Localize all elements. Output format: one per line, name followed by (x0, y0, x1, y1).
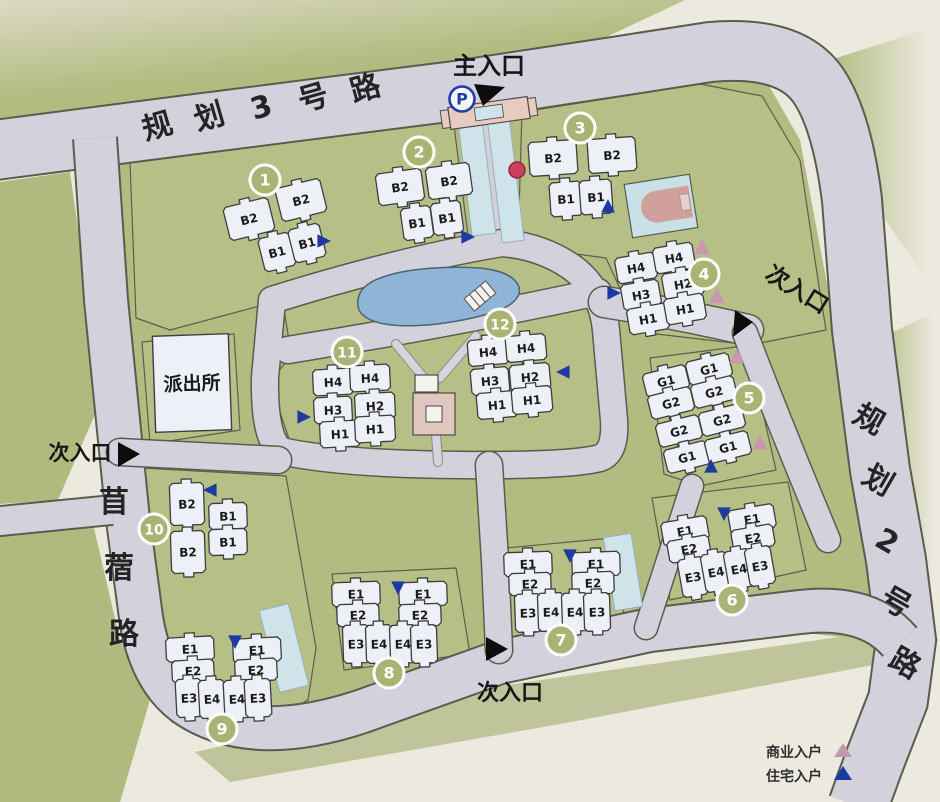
building-E3: E3 (583, 589, 611, 636)
legend-residential-label: 住宅入户 (766, 768, 822, 785)
cluster-number-text: 2 (413, 143, 424, 162)
cluster-number-text: 4 (698, 265, 709, 284)
cluster-number-text: 3 (574, 119, 585, 138)
cluster-number-text: 9 (216, 720, 227, 739)
building-label: E4 (730, 561, 749, 578)
red-dot-marker (509, 162, 525, 178)
cluster-number-badge-12: 12 (485, 309, 515, 339)
building-label: E4 (567, 605, 584, 620)
building-label: E4 (707, 564, 726, 581)
building-label: E4 (371, 637, 388, 652)
plaza-pavilion (415, 375, 438, 392)
building-label: H4 (516, 341, 536, 357)
building-label: B1 (557, 192, 575, 207)
building-label: E3 (416, 637, 433, 652)
building-label: H3 (480, 374, 500, 390)
cluster-number-badge-5: 5 (734, 383, 764, 413)
building-label: E4 (203, 692, 220, 707)
building-B2: B2 (528, 135, 579, 180)
building-label: H1 (522, 393, 542, 409)
parking-icon-letter: P (456, 90, 468, 109)
cluster-number-badge-7: 7 (546, 625, 576, 655)
building-label: E3 (348, 637, 365, 652)
building-label: E3 (520, 606, 537, 621)
cluster-number-text: 5 (743, 389, 754, 408)
building-label: E4 (543, 605, 560, 620)
building-B1: B1 (549, 177, 584, 221)
building-label: B1 (587, 190, 605, 205)
building-label: H1 (330, 427, 349, 442)
building-label: E3 (589, 605, 606, 620)
building-label: B2 (390, 179, 409, 195)
cluster-number-badge-1: 1 (250, 165, 280, 195)
parking-sign: P (450, 87, 475, 112)
cluster-number-badge-4: 4 (689, 259, 719, 289)
site-plan-page: 派出所 B2B2B1B1B2B2B1B1B2B2B1B1H4H4H3H2H1H1… (0, 0, 940, 802)
cluster-number-text: 6 (726, 591, 737, 610)
building-label: B1 (407, 215, 426, 231)
police-station: 派出所 (152, 334, 231, 433)
building-label: H1 (365, 422, 384, 437)
cluster-number-badge-9: 9 (207, 714, 237, 744)
cluster-number-badge-6: 6 (717, 585, 747, 615)
building-B1: B1 (208, 524, 247, 559)
building-label: E3 (751, 558, 770, 575)
cluster-number-text: 8 (383, 664, 394, 683)
cluster-number-text: 7 (555, 631, 566, 650)
plaza-inner-square (426, 406, 442, 422)
building-B2: B2 (587, 132, 638, 177)
building-label: B1 (437, 210, 456, 226)
building-E3: E3 (244, 674, 272, 721)
building-label: E3 (684, 569, 703, 586)
road-spur-bottom-entrance (489, 465, 499, 650)
building-label: B2 (439, 173, 458, 189)
cluster-number-badge-3: 3 (565, 113, 595, 143)
road-spur-left-entrance (120, 452, 278, 460)
police-station-label: 派出所 (163, 371, 221, 396)
building-label: H1 (487, 398, 507, 414)
building-label: E3 (180, 691, 197, 706)
building-E3: E3 (410, 621, 438, 668)
site-map: 派出所 B2B2B1B1B2B2B1B1B2B2B1B1H4H4H3H2H1H1… (0, 0, 940, 802)
building-label: E4 (395, 637, 412, 652)
cluster-number-badge-8: 8 (374, 658, 404, 688)
road-name-char-muxu: 苜 (99, 485, 129, 520)
bottom-entrance-label: 次入口 (477, 680, 543, 706)
road-left-branch (0, 510, 112, 522)
building-label: E3 (249, 691, 266, 706)
building-label: E1 (181, 642, 198, 657)
building-B2: B2 (169, 478, 205, 529)
cluster-number-badge-10: 10 (139, 514, 169, 544)
cluster-number-text: 1 (259, 171, 270, 190)
building-label: B2 (603, 148, 621, 163)
road-name-char-muxu: 路 (109, 617, 140, 652)
left-entrance-label: 次入口 (49, 441, 112, 465)
building-label: E4 (228, 692, 245, 707)
basketball-court (624, 174, 698, 238)
cluster-number-text: 11 (337, 346, 356, 362)
building-label: H4 (360, 371, 379, 386)
building-H1: H1 (354, 411, 396, 447)
legend-commercial-label: 商业入户 (766, 744, 822, 761)
road-name-char-muxu: 蓿 (104, 551, 134, 586)
cluster-number-text: 10 (144, 523, 164, 539)
building-label: B1 (219, 509, 237, 524)
main-entrance-label: 主入口 (453, 52, 525, 80)
cluster-number-badge-11: 11 (332, 337, 362, 367)
cluster-number-badge-2: 2 (404, 137, 434, 167)
building-label: B2 (178, 497, 196, 512)
cluster-number-text: 12 (490, 318, 509, 334)
building-B2: B2 (170, 526, 206, 577)
building-label: H3 (323, 403, 342, 418)
building-label: H4 (323, 375, 342, 390)
building-label: B1 (219, 535, 237, 550)
building-label: H4 (478, 345, 498, 361)
building-label: B2 (544, 151, 562, 166)
building-label: B2 (179, 545, 197, 560)
